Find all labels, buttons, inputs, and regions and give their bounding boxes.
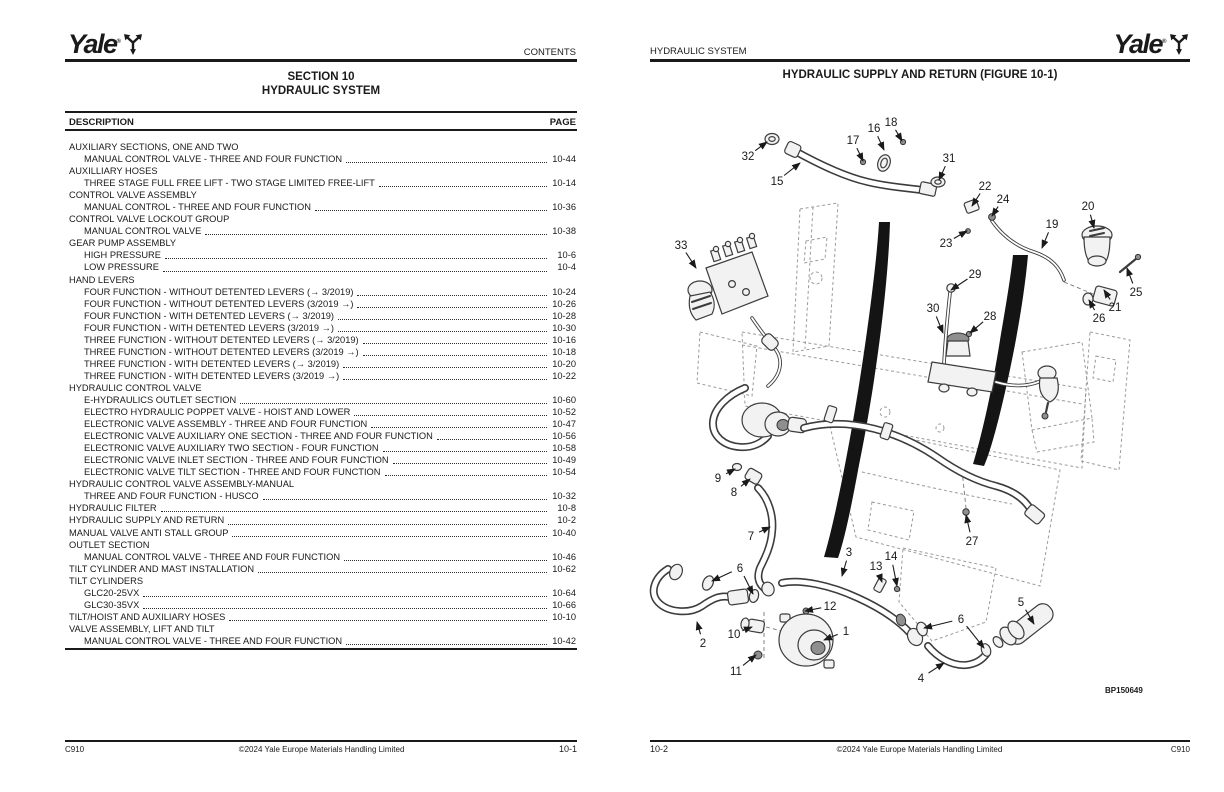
- figure-title: HYDRAULIC SUPPLY AND RETURN (FIGURE 10-1…: [650, 69, 1190, 81]
- callout-leader: [896, 130, 903, 141]
- toc-entry: GLC30-35VX10-66: [69, 599, 576, 611]
- footer-rule: [65, 740, 577, 742]
- callout-number: 3: [846, 547, 852, 559]
- callout-number: 5: [1018, 597, 1024, 609]
- callout-number: 31: [943, 153, 956, 165]
- toc-entry: ELECTRONIC VALVE AUXILIARY TWO SECTION -…: [69, 442, 576, 454]
- yale-wordmark: Yale®: [68, 32, 119, 56]
- callout-leader: [784, 163, 800, 176]
- col-page: PAGE: [550, 117, 576, 128]
- nut-24: [989, 214, 996, 221]
- toc-entry: ELECTRONIC VALVE AUXILIARY ONE SECTION -…: [69, 430, 576, 442]
- yale-logo: Yale®: [68, 32, 144, 56]
- section-name: HYDRAULIC SYSTEM: [65, 84, 577, 98]
- hydraulic-supply-return-figure: 1234566789101112131415161718192021222324…: [622, 95, 1182, 710]
- table-rule-mid: [65, 129, 577, 131]
- callout-leader: [954, 231, 967, 239]
- toc-heading: HYDRAULIC CONTROL VALVE ASSEMBLY-MANUAL: [69, 478, 576, 490]
- toc-entry: HYDRAULIC FILTER10-8: [69, 502, 576, 514]
- callout-leader: [893, 565, 897, 586]
- section-number: SECTION 10: [65, 70, 577, 84]
- callout-leader: [924, 621, 952, 628]
- callout-leader: [857, 148, 863, 161]
- toc-heading: TILT CYLINDERS: [69, 575, 576, 587]
- footer-rule: [650, 740, 1190, 742]
- toc-entry: THREE AND FOUR FUNCTION - HUSCO10-32: [69, 490, 576, 502]
- callout-number: 21: [1109, 302, 1122, 314]
- breather-group: [964, 199, 1141, 307]
- callout-leader: [929, 663, 945, 673]
- toc-entry: FOUR FUNCTION - WITH DETENTED LEVERS (→ …: [69, 310, 576, 322]
- toc-entry: FOUR FUNCTION - WITHOUT DETENTED LEVERS …: [69, 298, 576, 310]
- fitting-10: [747, 619, 765, 634]
- callout-number: 20: [1082, 201, 1095, 213]
- callout-number: 19: [1046, 219, 1059, 231]
- toc-entry: FOUR FUNCTION - WITH DETENTED LEVERS (3/…: [69, 322, 576, 334]
- callout-number: 6: [737, 563, 743, 575]
- table-rule-top: [65, 111, 577, 113]
- callout-number: 13: [870, 561, 883, 573]
- callout-number: 10: [728, 629, 741, 641]
- callout-leader: [842, 561, 847, 576]
- registered-mark: ®: [117, 39, 120, 45]
- callout-leader: [970, 322, 983, 333]
- header-rule: [650, 59, 1190, 62]
- clamp-6: [748, 589, 760, 604]
- toc-entry: MANUAL CONTROL VALVE10-38: [69, 225, 576, 237]
- callout-number: 1: [843, 626, 849, 638]
- toc-entry: TILT/HOIST AND AUXILIARY HOSES10-10: [69, 611, 576, 623]
- callout-number: 2: [700, 638, 706, 650]
- toc-entry: THREE FUNCTION - WITH DETENTED LEVERS (3…: [69, 370, 576, 382]
- callout-number: 8: [731, 487, 737, 499]
- callout-number: 11: [730, 666, 742, 678]
- toc-entry: GLC20-25VX10-64: [69, 587, 576, 599]
- control-valve-33: [688, 233, 780, 386]
- fitting-22: [964, 199, 980, 214]
- toc-heading: HYDRAULIC CONTROL VALVE: [69, 382, 576, 394]
- callout-number: 26: [1093, 313, 1106, 325]
- header-rule: [65, 59, 577, 62]
- callout-number: 14: [885, 551, 898, 563]
- yale-logo: Yale®: [1114, 32, 1190, 56]
- footer-copyright: ©2024 Yale Europe Materials Handling Lim…: [239, 745, 405, 754]
- registered-mark: ®: [1162, 39, 1165, 45]
- callout-number: 32: [742, 151, 755, 163]
- callout-number: 17: [847, 135, 860, 147]
- callout-number: 28: [984, 311, 997, 323]
- callout-number: 22: [979, 181, 992, 193]
- callout-leader: [936, 316, 943, 333]
- callout-number: 29: [969, 269, 982, 281]
- contents-page: Yale® CONTENTS SECTION 10 HYDRAULIC SYST…: [0, 0, 612, 792]
- toc-entry: HIGH PRESSURE10-6: [69, 249, 576, 261]
- filler-group: [928, 284, 1046, 396]
- callout-leader: [967, 626, 984, 648]
- callout-number: 16: [868, 123, 881, 135]
- hose-4-filter-5: [895, 600, 1057, 665]
- toc-entry: MANUAL CONTROL VALVE - THREE AND FOUR FU…: [69, 635, 576, 647]
- toc-heading: CONTROL VALVE LOCKOUT GROUP: [69, 213, 576, 225]
- toc-entry: ELECTRONIC VALVE INLET SECTION - THREE A…: [69, 454, 576, 466]
- callout-number: 18: [885, 117, 898, 129]
- toc-entry: MANUAL CONTROL VALVE - THREE AND F0UR FU…: [69, 551, 576, 563]
- footer-copyright: ©2024 Yale Europe Materials Handling Lim…: [837, 745, 1003, 754]
- hose-7: [733, 464, 777, 598]
- yale-fork-icon: [122, 32, 144, 56]
- toc-entry: THREE FUNCTION - WITHOUT DETENTED LEVERS…: [69, 334, 576, 346]
- running-header-contents: CONTENTS: [524, 47, 576, 58]
- toc-entry: HYDRAULIC SUPPLY AND RETURN10-2: [69, 514, 576, 526]
- toc-entry: THREE STAGE FULL FREE LIFT - TWO STAGE L…: [69, 177, 576, 189]
- callout-leader: [878, 136, 884, 150]
- table-of-contents: AUXILIARY SECTIONS, ONE AND TWOMANUAL CO…: [69, 141, 576, 647]
- callout-leader: [712, 572, 732, 581]
- yale-wordmark: Yale®: [1114, 32, 1165, 56]
- page-footer: C910 ©2024 Yale Europe Materials Handlin…: [65, 744, 577, 754]
- toc-heading: CONTROL VALVE ASSEMBLY: [69, 189, 576, 201]
- callout-number: 6: [958, 614, 964, 626]
- toc-entry: LOW PRESSURE10-4: [69, 261, 576, 273]
- frame-component: [1038, 366, 1058, 419]
- callout-number: 15: [771, 176, 784, 188]
- callout-number: 27: [966, 536, 979, 548]
- footer-page-number: 10-2: [650, 744, 668, 754]
- toc-heading: AUXILIARY SECTIONS, ONE AND TWO: [69, 141, 576, 153]
- bracket-13: [873, 577, 887, 593]
- running-header-section: HYDRAULIC SYSTEM: [650, 46, 747, 57]
- callout-leader: [966, 515, 970, 532]
- callout-number: 24: [997, 194, 1010, 206]
- callout-number: 25: [1130, 287, 1143, 299]
- toc-heading: AUXILLIARY HOSES: [69, 165, 576, 177]
- callout-leader: [1127, 268, 1133, 284]
- table-rule-bottom: [65, 648, 577, 650]
- fitting-8: [744, 467, 763, 485]
- toc-entry: THREE FUNCTION - WITHOUT DETENTED LEVERS…: [69, 346, 576, 358]
- callout-leader: [686, 253, 696, 269]
- callout-number: 23: [940, 238, 953, 250]
- figure-code: BP150649: [1105, 686, 1143, 695]
- callout-leader: [755, 142, 767, 151]
- callout-number: 12: [824, 601, 837, 613]
- section-title: SECTION 10 HYDRAULIC SYSTEM: [65, 70, 577, 98]
- callout-number: 33: [675, 240, 688, 252]
- toc-entry: ELECTRO HYDRAULIC POPPET VALVE - HOIST A…: [69, 406, 576, 418]
- callout-leader: [726, 469, 735, 474]
- hose-2: [654, 562, 760, 611]
- bolt-14: [894, 586, 899, 591]
- yale-fork-icon: [1168, 32, 1190, 56]
- clip-26: [1083, 293, 1093, 305]
- callout-number: 7: [748, 531, 754, 543]
- toc-entry: MANUAL CONTROL VALVE - THREE AND FOUR FU…: [69, 153, 576, 165]
- bolt-25: [1120, 258, 1137, 272]
- callout-leader: [697, 622, 701, 634]
- footer-doc-code: C910: [1171, 745, 1190, 754]
- toc-entry: E-HYDRAULICS OUTLET SECTION10-60: [69, 394, 576, 406]
- callout-leader: [1042, 232, 1049, 248]
- footer-page-number: 10-1: [559, 744, 577, 754]
- toc-heading: OUTLET SECTION: [69, 539, 576, 551]
- toc-entry: ELECTRONIC VALVE TILT SECTION - THREE AN…: [69, 466, 576, 478]
- toc-entry: TILT CYLINDER AND MAST INSTALLATION10-62: [69, 563, 576, 575]
- col-description: DESCRIPTION: [69, 117, 134, 128]
- callout-number: 9: [715, 473, 721, 485]
- page-footer: 10-2 ©2024 Yale Europe Materials Handlin…: [650, 744, 1190, 754]
- swoosh-marks: [824, 222, 1028, 558]
- toc-entry: FOUR FUNCTION - WITHOUT DETENTED LEVERS …: [69, 286, 576, 298]
- callout-leader: [743, 655, 756, 665]
- toc-heading: VALVE ASSEMBLY, LIFT AND TILT: [69, 623, 576, 635]
- toc-heading: GEAR PUMP ASSEMBLY: [69, 237, 576, 249]
- callout-number: 30: [927, 303, 940, 315]
- toc-column-headers: DESCRIPTION PAGE: [69, 117, 576, 128]
- toc-heading: HAND LEVERS: [69, 274, 576, 286]
- toc-entry: THREE FUNCTION - WITH DETENTED LEVERS (→…: [69, 358, 576, 370]
- callout-number: 4: [918, 673, 925, 685]
- figure-page: HYDRAULIC SYSTEM Yale® HYDRAULIC SUPPLY …: [612, 0, 1224, 792]
- toc-entry: MANUAL VALVE ANTI STALL GROUP10-40: [69, 527, 576, 539]
- toc-entry: MANUAL CONTROL - THREE AND FOUR FUNCTION…: [69, 201, 576, 213]
- gear-pump-1: [740, 608, 834, 668]
- toc-entry: ELECTRONIC VALVE ASSEMBLY - THREE AND FO…: [69, 418, 576, 430]
- callout-leader: [741, 479, 750, 486]
- footer-doc-code: C910: [65, 745, 84, 754]
- clamp-6: [700, 574, 715, 592]
